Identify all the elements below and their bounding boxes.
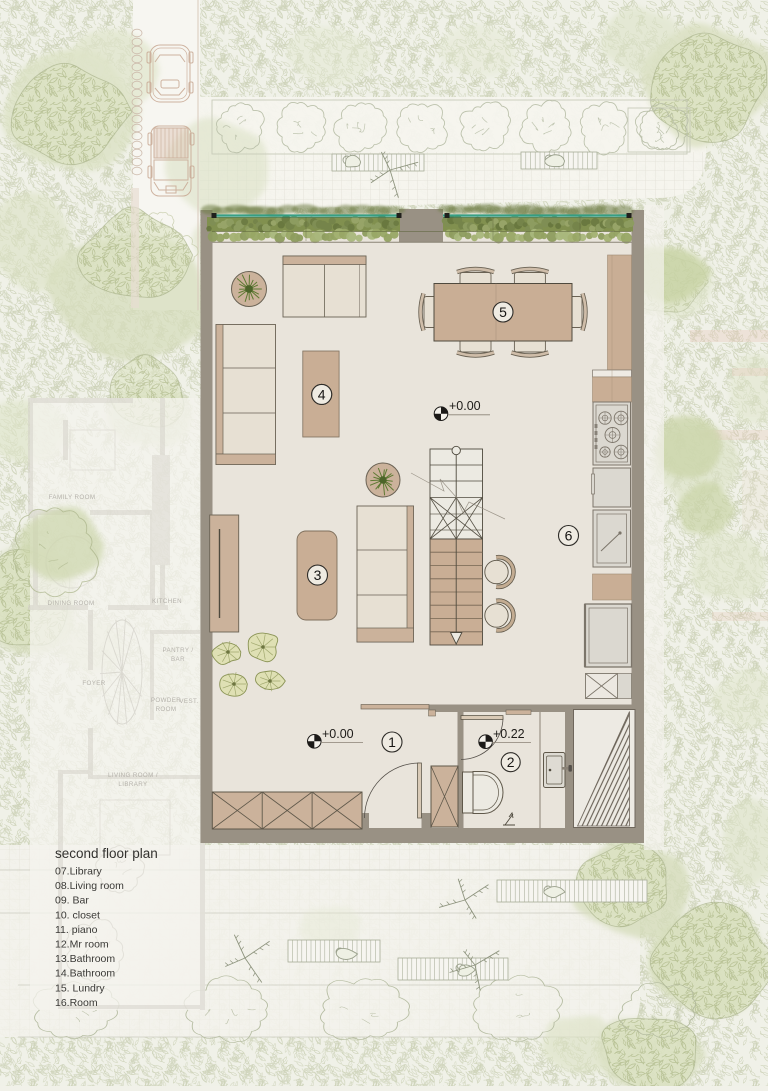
svg-text:FAMILY ROOM: FAMILY ROOM: [49, 494, 96, 501]
svg-text:PANTRY /: PANTRY /: [162, 647, 193, 654]
svg-text:3: 3: [314, 567, 322, 583]
svg-text:+0.00: +0.00: [322, 727, 354, 741]
svg-text:BAR: BAR: [171, 656, 185, 663]
svg-text:+0.22: +0.22: [493, 727, 525, 741]
svg-text:16.Room: 16.Room: [55, 997, 98, 1009]
svg-text:2: 2: [507, 754, 515, 770]
svg-text:6: 6: [565, 528, 573, 544]
svg-text:ROOM: ROOM: [156, 706, 177, 713]
svg-text:+0.00: +0.00: [449, 399, 481, 413]
svg-text:12.Mr room: 12.Mr room: [55, 939, 109, 951]
svg-text:07.Library: 07.Library: [55, 866, 102, 878]
svg-text:second floor plan: second floor plan: [55, 846, 158, 861]
svg-text:4: 4: [318, 386, 326, 402]
svg-text:11. piano: 11. piano: [55, 924, 98, 936]
svg-text:09. Bar: 09. Bar: [55, 895, 89, 907]
svg-text:13.Bathroom: 13.Bathroom: [55, 953, 115, 965]
svg-text:KITCHEN: KITCHEN: [152, 598, 182, 605]
svg-text:08.Living room: 08.Living room: [55, 880, 124, 892]
svg-text:LIVING ROOM /: LIVING ROOM /: [108, 772, 158, 779]
svg-text:15. Lundry: 15. Lundry: [55, 982, 105, 994]
svg-text:DINING ROOM: DINING ROOM: [47, 600, 94, 607]
svg-text:1: 1: [388, 734, 396, 750]
svg-text:VEST.: VEST.: [179, 698, 198, 705]
svg-text:FOYER: FOYER: [82, 680, 105, 687]
svg-text:5: 5: [499, 304, 507, 320]
svg-text:POWDER: POWDER: [151, 697, 181, 704]
svg-text:14.Bathroom: 14.Bathroom: [55, 968, 115, 980]
svg-text:10. closet: 10. closet: [55, 909, 100, 921]
svg-text:LIBRARY: LIBRARY: [118, 781, 147, 788]
